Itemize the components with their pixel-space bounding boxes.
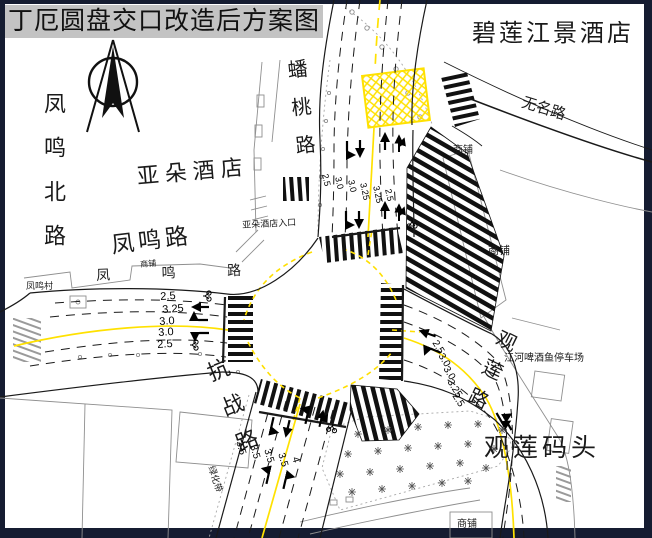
drawing-title: 丁厄圆盘交口改造后方案图 bbox=[5, 5, 323, 38]
label-shop-ne: 商铺 bbox=[453, 146, 473, 156]
lane-width-north-1: 2.5 bbox=[320, 173, 331, 187]
yellow-box-junction bbox=[362, 68, 430, 127]
label-shop-e: 商铺 bbox=[488, 246, 510, 257]
label-shop-s: 商铺 bbox=[457, 520, 477, 530]
lane-width-north-2: 3.0 bbox=[333, 176, 344, 190]
label-bilian-hotel: 碧莲江景酒店 bbox=[472, 22, 634, 46]
label-shop-w: 商铺 bbox=[140, 260, 157, 269]
lane-width-west-1: 2.5 bbox=[160, 291, 176, 303]
label-guanlian-wharf: 观莲码头 bbox=[484, 436, 600, 461]
plan-sheet: 丁厄圆盘交口改造后方案图 碧莲江景酒店 无名路 凤鸣北路 亚朵酒店 凤鸣路 凤 … bbox=[0, 0, 652, 538]
label-parking-lot: 江河啤酒鱼停车场 bbox=[504, 354, 584, 364]
lane-width-west-5: 2.5 bbox=[157, 339, 173, 351]
lane-width-north-3: 3.0 bbox=[346, 179, 357, 193]
label-fengming-north-road: 凤鸣北路 bbox=[42, 92, 64, 268]
label-fengming-village: 凤鸣村 bbox=[26, 282, 53, 291]
lane-width-north-6: 2.5 bbox=[383, 188, 394, 202]
